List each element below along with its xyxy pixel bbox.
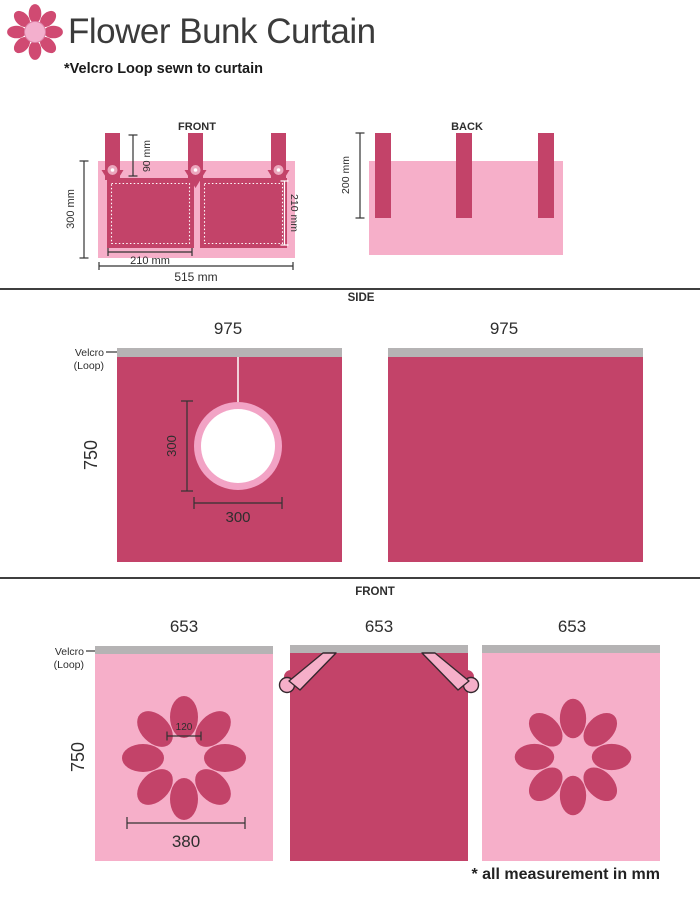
side-section-title: SIDE [311, 292, 411, 304]
velcro-note: *Velcro Loop sewn to curtain [64, 61, 263, 77]
front-panel-left: 120 380 [95, 646, 273, 861]
velcro-strip [290, 645, 468, 653]
front-diagrams: 653 653 653 Velcro (Loop) 120 [0, 578, 700, 898]
svg-text:200 mm: 200 mm [340, 156, 352, 194]
svg-text:90 mm: 90 mm [141, 140, 153, 172]
pocket-left [107, 178, 194, 248]
velcro-strip [117, 348, 342, 357]
velcro-strip [95, 646, 273, 654]
svg-text:(Loop): (Loop) [54, 659, 84, 671]
section-divider [0, 288, 700, 290]
front-height-label: 750 [68, 742, 88, 772]
pocket-right [200, 178, 287, 248]
svg-text:300: 300 [225, 509, 250, 526]
page-title: Flower Bunk Curtain [68, 12, 376, 52]
svg-text:120: 120 [176, 722, 193, 733]
footer-note: * all measurement in mm [471, 866, 660, 884]
flower-motif [122, 696, 246, 820]
velcro-strip [388, 348, 643, 357]
front-panel-middle [280, 645, 479, 861]
pocket-diagrams: FRONT [0, 106, 700, 292]
velcro-strip [482, 645, 660, 653]
pocket-back-label: BACK [451, 121, 483, 133]
front-panel-right [482, 645, 660, 861]
velcro-loop-label: Velcro (Loop) [74, 347, 117, 372]
svg-text:300: 300 [164, 435, 179, 457]
dim-pocket-panel-width: 515 mm [99, 262, 293, 284]
svg-text:300 mm: 300 mm [65, 189, 77, 229]
svg-text:210 mm: 210 mm [130, 255, 170, 267]
pocket-back-diagram: BACK 200 mm [340, 121, 563, 255]
side-panel-left: 300 300 [117, 348, 342, 562]
pocket-front-label: FRONT [178, 121, 216, 133]
svg-text:Velcro: Velcro [75, 347, 104, 359]
velcro-loop-label: Velcro (Loop) [54, 646, 96, 671]
svg-text:(Loop): (Loop) [74, 360, 104, 372]
side-diagrams: 975 975 Velcro (Loop) 300 300 [0, 310, 700, 578]
side-height-label: 750 [81, 440, 101, 470]
flower-logo-icon [6, 3, 64, 61]
curtain-hole [201, 409, 275, 483]
front-panel3-width-label: 653 [558, 617, 586, 636]
side-panel1-width-label: 975 [214, 319, 242, 338]
svg-text:210 mm: 210 mm [288, 194, 300, 232]
dim-pocket-panel-height: 300 mm [65, 161, 89, 258]
svg-text:Velcro: Velcro [55, 646, 84, 658]
side-panel-right [388, 348, 643, 562]
front-panel2-width-label: 653 [365, 617, 393, 636]
pocket-front-diagram: FRONT [65, 121, 300, 284]
flower-motif [515, 699, 632, 816]
dim-strap-length: 200 mm [340, 133, 365, 218]
spec-sheet: Flower Bunk Curtain *Velcro Loop sewn to… [0, 0, 700, 898]
svg-text:515 mm: 515 mm [174, 270, 217, 284]
side-panel2-width-label: 975 [490, 319, 518, 338]
front-panel1-width-label: 653 [170, 617, 198, 636]
svg-text:380: 380 [172, 832, 200, 851]
